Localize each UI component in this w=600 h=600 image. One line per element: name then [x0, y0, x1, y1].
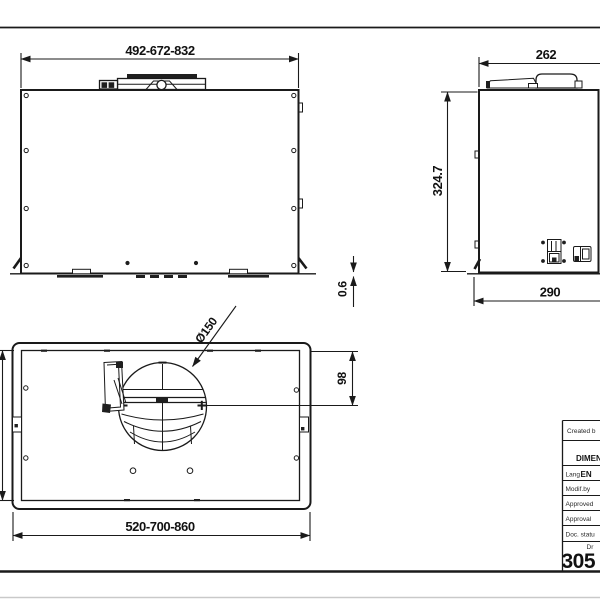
panel-gap-dim: 0.6	[336, 256, 354, 307]
duct-diameter-label: Ø150	[192, 314, 220, 346]
side-depth-dim: 290	[474, 277, 600, 306]
modified-by-label: Modif.by	[566, 486, 591, 493]
approved-label: Approved	[566, 501, 594, 508]
side-view: 262 324.7 290	[430, 47, 600, 306]
approval-label: Approval	[566, 516, 592, 523]
front-body	[21, 90, 299, 274]
duct-outlet	[119, 363, 207, 451]
doc-status-label: Doc. statu	[566, 532, 596, 539]
top-view: Ø150 98 520-700-860	[0, 306, 358, 541]
top-width-dim: 520-700-860	[13, 512, 310, 541]
front-width-dimension: 492-672-832	[125, 43, 194, 58]
duct-offset-dimension: 98	[335, 372, 349, 385]
created-by-label: Created b	[567, 428, 596, 435]
front-view: 492-672-832 0.6	[10, 43, 354, 307]
side-height-dimension: 324.7	[430, 166, 445, 197]
doc-title: DIMEN	[576, 454, 600, 463]
side-top-width-dimension: 262	[536, 47, 557, 62]
panel-gap-dimension: 0.6	[336, 281, 350, 297]
side-depth-dimension: 290	[540, 285, 561, 300]
top-width-dimension: 520-700-860	[125, 519, 194, 534]
lang-value: EN	[581, 470, 592, 479]
side-height-dim: 324.7	[430, 92, 478, 272]
front-top-bracket	[100, 74, 206, 90]
technical-drawing: 492-672-832 0.6	[0, 0, 600, 600]
side-top-bracket	[486, 74, 582, 88]
title-block: Created b DIMEN Lang EN Modif.by Approve…	[562, 421, 600, 574]
drawing-number: 305	[562, 550, 596, 573]
lang-label: Lang	[566, 472, 581, 479]
side-body	[479, 90, 599, 273]
